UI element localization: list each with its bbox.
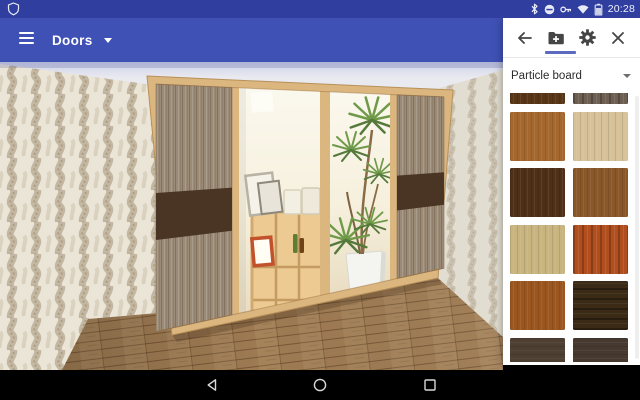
shield-icon [7, 2, 20, 16]
room-scene-svg [0, 62, 503, 370]
wifi-icon [577, 4, 589, 14]
key-icon [560, 4, 572, 15]
panel-scrollbar[interactable] [635, 96, 639, 359]
room-preview-3d[interactable] [0, 62, 503, 370]
texture-swatch[interactable] [573, 281, 628, 330]
texture-swatch[interactable] [573, 168, 628, 217]
texture-swatch[interactable] [510, 93, 565, 104]
back-nav-icon[interactable] [205, 378, 219, 392]
page-title: Doors [52, 33, 93, 48]
material-side-panel: Particle board [503, 18, 640, 365]
battery-icon [594, 3, 603, 16]
door-accent-band [397, 172, 444, 210]
wardrobe-door-1 [156, 84, 232, 332]
texture-swatch[interactable] [510, 281, 565, 330]
status-bar: 20:28 [0, 0, 640, 18]
page-title-dropdown[interactable]: Doors [52, 18, 93, 62]
status-time: 20:28 [608, 3, 635, 15]
bluetooth-icon [530, 3, 539, 15]
panel-toolbar [503, 18, 640, 58]
wardrobe-mirror-door-1 [236, 84, 325, 316]
dropdown-caret-icon [104, 38, 112, 43]
texture-swatch[interactable] [510, 168, 565, 217]
settings-gear-icon[interactable] [577, 28, 597, 48]
texture-swatch[interactable] [573, 93, 628, 104]
door-accent-band [156, 188, 232, 240]
texture-swatch[interactable] [573, 112, 628, 161]
texture-swatch[interactable] [573, 338, 628, 363]
texture-swatch[interactable] [510, 112, 565, 161]
material-type-value: Particle board [511, 70, 582, 82]
swatch-grid [503, 93, 640, 362]
texture-swatch[interactable] [573, 225, 628, 274]
texture-swatch[interactable] [510, 225, 565, 274]
select-caret-icon [623, 74, 631, 78]
active-tab-underline [545, 51, 576, 54]
recents-nav-icon[interactable] [423, 378, 437, 392]
add-folder-icon[interactable] [546, 28, 566, 48]
material-type-select[interactable]: Particle board [503, 58, 640, 93]
close-icon[interactable] [608, 28, 628, 48]
android-nav-bar [0, 370, 640, 400]
menu-icon[interactable] [19, 32, 34, 45]
back-arrow-icon[interactable] [515, 28, 535, 48]
wardrobe-mirror-door-2 [324, 88, 395, 298]
texture-swatch[interactable] [510, 338, 565, 363]
wardrobe-door-4 [397, 95, 444, 279]
home-nav-icon[interactable] [313, 378, 327, 392]
do-not-disturb-icon [544, 4, 555, 15]
texture-list-viewport[interactable] [503, 93, 640, 362]
